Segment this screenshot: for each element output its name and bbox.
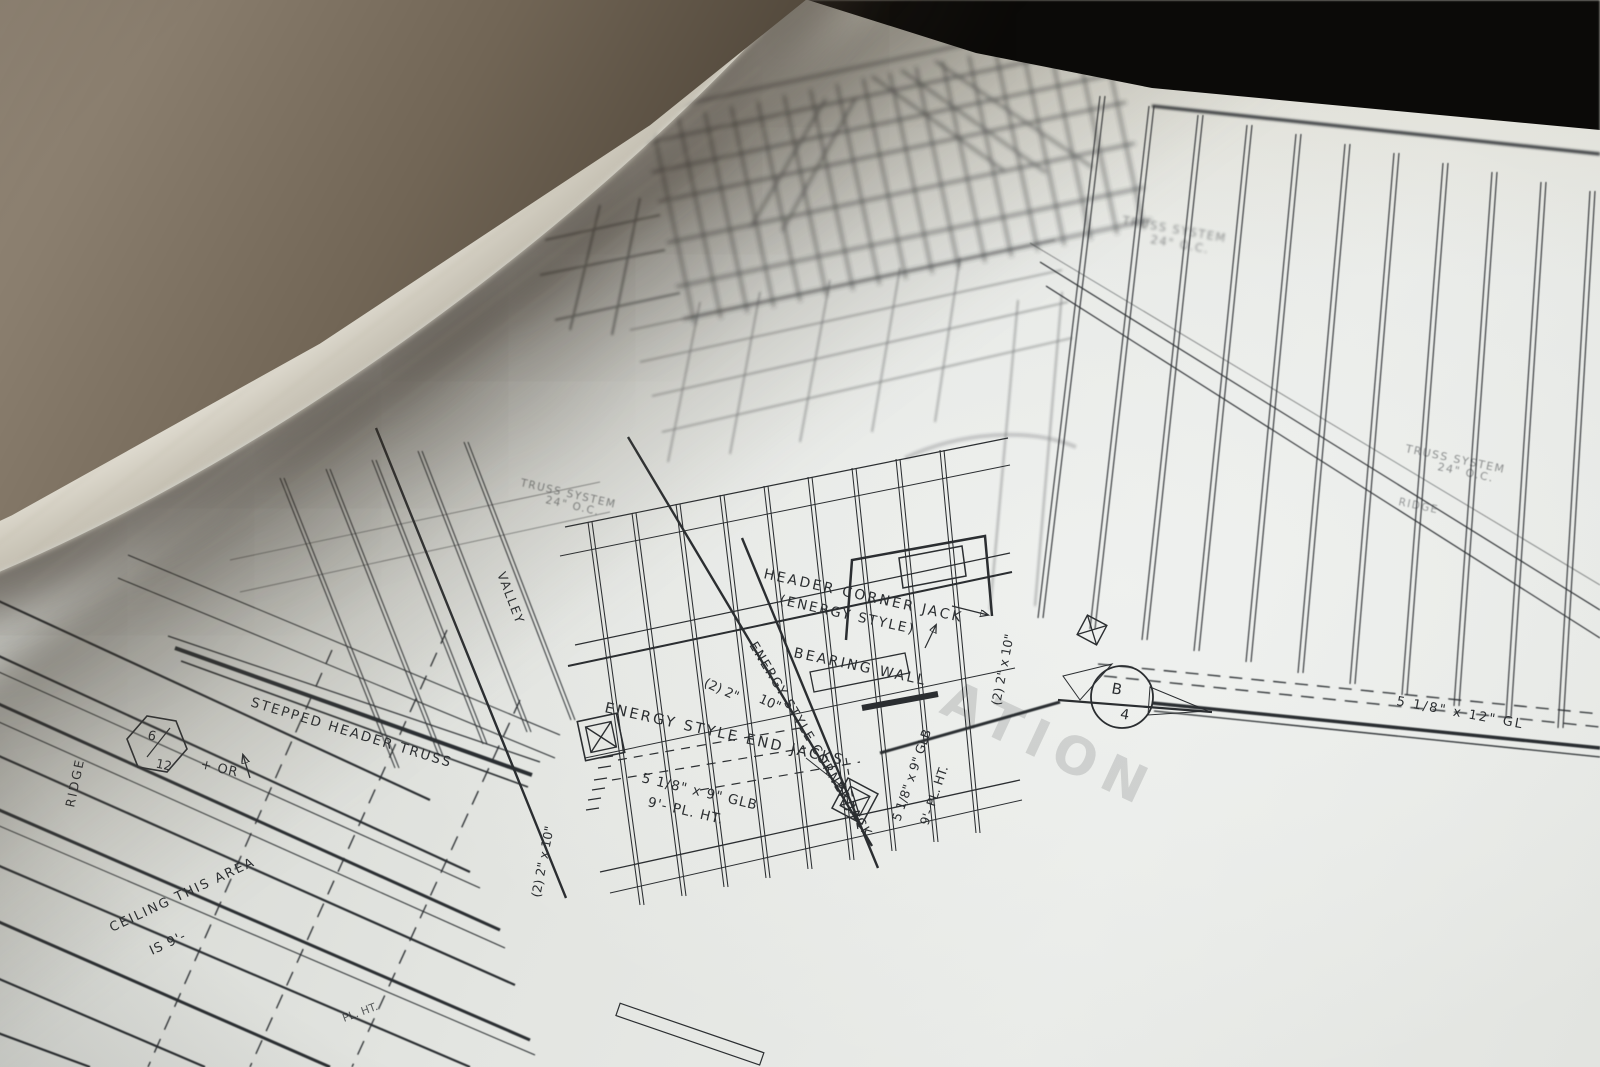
qty-2-2in-label: (2) 2" bbox=[701, 676, 741, 705]
section-marker-number: 4 bbox=[1119, 706, 1131, 723]
section-marker-letter: B bbox=[1110, 679, 1123, 699]
crossed-box-symbol bbox=[1077, 615, 1107, 645]
callout-arrow-up bbox=[925, 625, 936, 648]
tick-marks bbox=[586, 756, 613, 810]
photo-scene: B 4 bbox=[0, 0, 1600, 1067]
solid-header-bar bbox=[862, 694, 938, 708]
hatched-bar bbox=[616, 1003, 764, 1065]
